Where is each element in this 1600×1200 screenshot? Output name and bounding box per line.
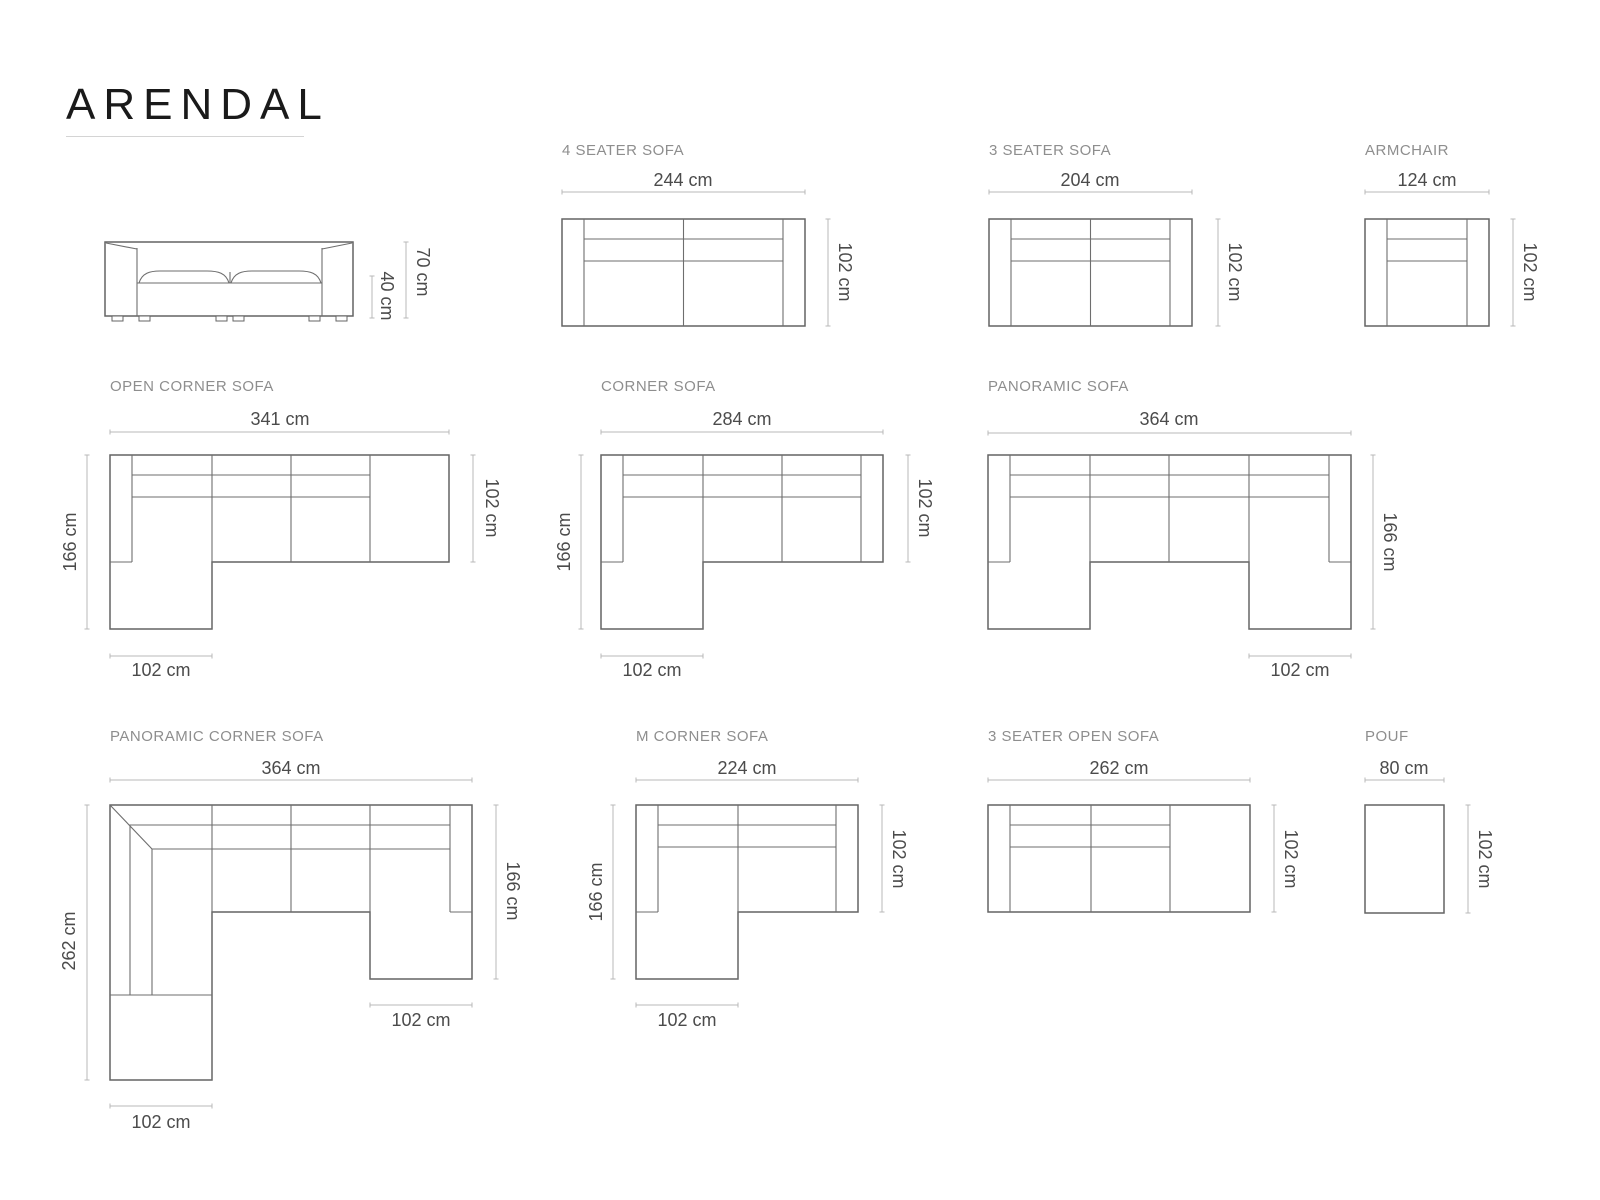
sofa-outline (105, 242, 353, 316)
dim-line-bottom-chaise (110, 1104, 212, 1109)
product-label: 4 SEATER SOFA (562, 142, 684, 159)
back-lines (1387, 239, 1467, 261)
sofa-outline (110, 455, 449, 629)
dim-line-width (110, 778, 472, 783)
dim-line-total-height (404, 242, 409, 318)
back-lines (658, 825, 836, 847)
depth-value: 102 cm (1281, 829, 1301, 888)
diagram-armchair: ARMCHAIR 124 cm 102 cm (1365, 142, 1540, 326)
dim-line-left-depth (85, 805, 90, 1080)
seat-height-value: 40 cm (377, 271, 397, 320)
dim-line-width (989, 190, 1192, 195)
dim-line-width (1365, 190, 1489, 195)
arm-lines (1387, 219, 1467, 326)
seat-dividers (703, 455, 782, 629)
depth-value: 102 cm (1475, 829, 1495, 888)
product-label: OPEN CORNER SOFA (110, 378, 274, 395)
dim-line-depth (579, 455, 584, 629)
diagram-sofa-front-view: 40 cm 70 cm (105, 242, 433, 321)
back-lines (132, 475, 370, 497)
arm-lines (636, 805, 836, 912)
diagram-pouf: POUF 80 cm 102 cm (1365, 728, 1495, 913)
arm-lines (601, 455, 861, 562)
dim-line-width (601, 430, 883, 435)
arm-line (110, 455, 132, 562)
width-value: 244 cm (653, 170, 712, 190)
diagram-open-corner-sofa: OPEN CORNER SOFA 341 cm 166 cm 102 cm 10… (60, 378, 502, 680)
depth-value: 166 cm (1380, 512, 1400, 571)
chaise-value: 102 cm (1270, 660, 1329, 680)
product-label: ARMCHAIR (1365, 142, 1449, 159)
sofa-outline (1365, 219, 1489, 326)
arm-top-edges (106, 243, 352, 249)
dim-line-width (988, 431, 1351, 436)
dim-line-depth (1466, 805, 1471, 913)
depth-value: 102 cm (835, 242, 855, 301)
width-value: 80 cm (1379, 758, 1428, 778)
left-depth-value: 262 cm (59, 911, 79, 970)
dim-line-depth (85, 455, 90, 629)
depth-value: 166 cm (60, 512, 80, 571)
back-lines (1010, 825, 1170, 847)
diagram-3-seater-sofa: 3 SEATER SOFA 204 cm 102 cm (989, 142, 1245, 326)
dim-line-chaise (636, 1003, 738, 1008)
diagram-panoramic-sofa: PANORAMIC SOFA 364 cm 166 cm 102 cm (988, 378, 1400, 680)
dim-line-side (471, 455, 476, 562)
chaise-value: 102 cm (131, 660, 190, 680)
corner-diagonal (110, 805, 152, 849)
dim-line-depth (1272, 805, 1277, 912)
back-lines-left-wing (130, 826, 152, 995)
product-label: PANORAMIC CORNER SOFA (110, 728, 324, 745)
dim-line-side (880, 805, 885, 912)
diagram-4-seater-sofa: 4 SEATER SOFA 244 cm 102 cm (562, 142, 855, 326)
sofa-foot (216, 316, 227, 321)
sofa-foot (139, 316, 150, 321)
sofa-foot (233, 316, 244, 321)
width-value: 341 cm (250, 409, 309, 429)
diagrams-canvas: 40 cm 70 cm 4 SEATER SOFA 244 cm 102 cm … (0, 0, 1600, 1200)
seat-dividers (1090, 455, 1249, 629)
depth-value: 102 cm (1225, 242, 1245, 301)
sofa-outline (988, 805, 1250, 912)
width-value: 364 cm (261, 758, 320, 778)
width-value: 204 cm (1060, 170, 1119, 190)
bottom-chaise-value: 102 cm (131, 1112, 190, 1132)
product-label: PANORAMIC SOFA (988, 378, 1129, 395)
dim-line-chaise (601, 654, 703, 659)
total-height-value: 70 cm (413, 247, 433, 296)
dim-line-width (562, 190, 805, 195)
back-lines (623, 475, 861, 497)
dim-line-width (1365, 778, 1444, 783)
right-chaise-value: 102 cm (391, 1010, 450, 1030)
seat-cushion-left (139, 271, 229, 283)
dim-line-chaise (1249, 654, 1351, 659)
product-label: M CORNER SOFA (636, 728, 768, 745)
product-label: CORNER SOFA (601, 378, 716, 395)
depth-value: 102 cm (1520, 242, 1540, 301)
pouf-outline (1365, 805, 1444, 913)
sofa-foot (336, 316, 347, 321)
side-value: 102 cm (915, 478, 935, 537)
dim-line-right-chaise (370, 1003, 472, 1008)
dim-line-side (906, 455, 911, 562)
sofa-foot (309, 316, 320, 321)
diagram-3-seater-open-sofa: 3 SEATER OPEN SOFA 262 cm 102 cm (988, 728, 1301, 912)
chaise-value: 102 cm (657, 1010, 716, 1030)
right-depth-value: 166 cm (503, 861, 523, 920)
seat-dividers (212, 805, 370, 1080)
dim-line-depth (1511, 219, 1516, 326)
spec-sheet: ARENDAL 40 cm 70 cm 4 SEATER SOFA (0, 0, 1600, 1200)
dim-line-right-depth (494, 805, 499, 979)
depth-value: 166 cm (586, 862, 606, 921)
sofa-outline (601, 455, 883, 629)
back-lines-top (129, 825, 450, 849)
dim-line-chaise (110, 654, 212, 659)
seat-dividers (1091, 805, 1170, 912)
diagram-panoramic-corner-sofa: PANORAMIC CORNER SOFA 364 cm 262 cm 166 … (59, 728, 523, 1132)
width-value: 284 cm (712, 409, 771, 429)
chaise-value: 102 cm (622, 660, 681, 680)
product-label: 3 SEATER SOFA (989, 142, 1111, 159)
dim-line-depth (1371, 455, 1376, 629)
dim-line-depth (1216, 219, 1221, 326)
depth-value: 166 cm (554, 512, 574, 571)
seat-dividers (212, 455, 370, 629)
arm-line (450, 805, 472, 912)
dim-line-width (636, 778, 858, 783)
side-value: 102 cm (482, 478, 502, 537)
width-value: 224 cm (717, 758, 776, 778)
dim-line-width (110, 430, 449, 435)
dim-line-width (988, 778, 1250, 783)
width-value: 364 cm (1139, 409, 1198, 429)
sofa-outline (636, 805, 858, 979)
dim-line-depth (826, 219, 831, 326)
sofa-foot (112, 316, 123, 321)
dim-line-depth (611, 805, 616, 979)
dim-line-seat-height (370, 276, 375, 318)
diagram-corner-sofa: CORNER SOFA 284 cm 166 cm 102 cm 102 cm (554, 378, 935, 680)
width-value: 124 cm (1397, 170, 1456, 190)
side-value: 102 cm (889, 829, 909, 888)
product-label: POUF (1365, 728, 1409, 745)
product-label: 3 SEATER OPEN SOFA (988, 728, 1159, 745)
seat-cushion-right (231, 271, 321, 283)
width-value: 262 cm (1089, 758, 1148, 778)
diagram-m-corner-sofa: M CORNER SOFA 224 cm 166 cm 102 cm 102 c… (586, 728, 909, 1030)
